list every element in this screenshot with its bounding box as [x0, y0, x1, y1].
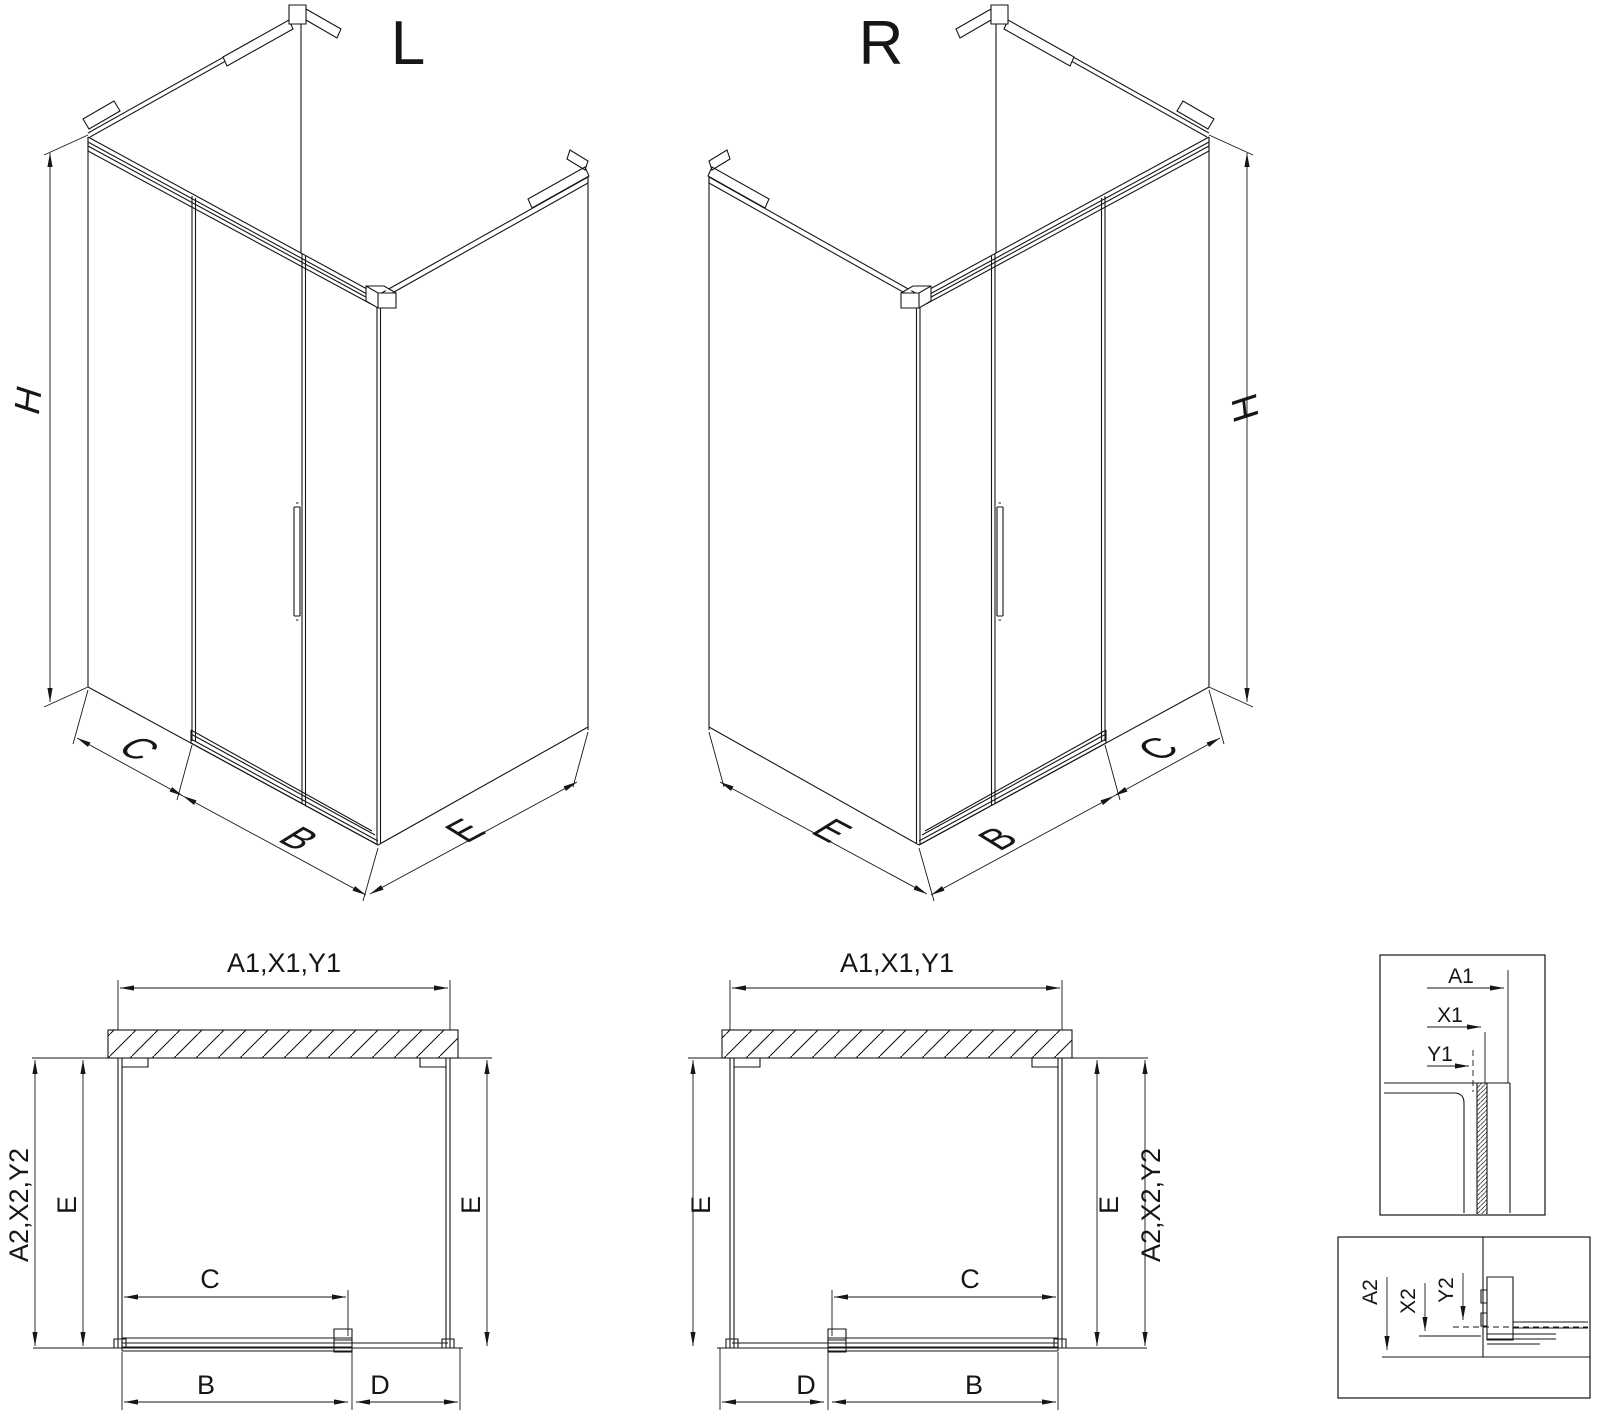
iso-r-c-label: C [1128, 731, 1190, 768]
iso-l-c-label: C [107, 731, 169, 768]
detail-top-wall-profile [1384, 1083, 1510, 1214]
plan-view-l: A1,X1,Y1 A2,X2,Y2 E E C B D [4, 948, 492, 1410]
shower-enclosure-drawing: L H C B E R H C B E A1,X1,Y1 A2,X2,Y2 E … [0, 0, 1600, 1423]
detail-view-a2x2y2: A2 X2 Y2 [1338, 1237, 1590, 1398]
detail-top-frame [1380, 955, 1545, 1215]
iso-l-height-label: H [7, 381, 49, 420]
plan-l-e-right-label: E [456, 1196, 486, 1214]
iso-view-l: L H C B E [7, 5, 589, 901]
plan-l-e-left-label: E [52, 1196, 82, 1214]
iso-r-height-label: H [1224, 389, 1266, 428]
plan-view-r: A1,X1,Y1 A2,X2,Y2 E E C B D [686, 948, 1166, 1410]
detail-bottom-y2-label: Y2 [1435, 1277, 1458, 1303]
technical-drawing-sheet: L H C B E R H C B E A1,X1,Y1 A2,X2,Y2 E … [0, 0, 1600, 1423]
iso-r-title: R [859, 9, 904, 78]
plan-r-top-label: A1,X1,Y1 [840, 948, 954, 978]
plan-r-e-left-label: E [686, 1196, 716, 1214]
plan-l-c-label: C [200, 1264, 220, 1294]
iso-l-b-label: B [268, 821, 328, 857]
plan-l-wall-hatched [108, 1030, 458, 1058]
detail-top-ref-lines [1485, 970, 1508, 1083]
iso-l-title: L [391, 9, 425, 78]
detail-bottom-door-profile [1481, 1277, 1588, 1344]
plan-r-b-label: B [965, 1370, 983, 1400]
plan-l-side-label: A2,X2,Y2 [4, 1148, 34, 1262]
plan-r-side-label: A2,X2,Y2 [1136, 1148, 1166, 1262]
plan-r-wall-hatched [722, 1030, 1072, 1058]
plan-l-b-label: B [197, 1370, 215, 1400]
detail-bottom-frame [1338, 1237, 1590, 1398]
iso-r-e-label: E [801, 813, 861, 849]
plan-l-d-label: D [370, 1370, 390, 1400]
iso-r-b-label: B [969, 821, 1029, 857]
detail-top-y1-label: Y1 [1427, 1043, 1453, 1066]
plan-r-e-right-label: E [1094, 1196, 1124, 1214]
detail-top-x1-label: X1 [1437, 1004, 1463, 1027]
iso-view-r: R H C B E [708, 5, 1266, 901]
detail-top-a1-label: A1 [1448, 965, 1474, 988]
detail-top-glass-hatched [1477, 1083, 1487, 1214]
plan-l-top-label: A1,X1,Y1 [227, 948, 341, 978]
detail-view-a1x1y1: A1 X1 Y1 [1380, 955, 1545, 1215]
detail-bottom-x2-label: X2 [1397, 1288, 1420, 1314]
detail-bottom-a2-label: A2 [1359, 1279, 1382, 1305]
plan-r-d-label: D [796, 1370, 816, 1400]
plan-r-c-label: C [960, 1264, 980, 1294]
